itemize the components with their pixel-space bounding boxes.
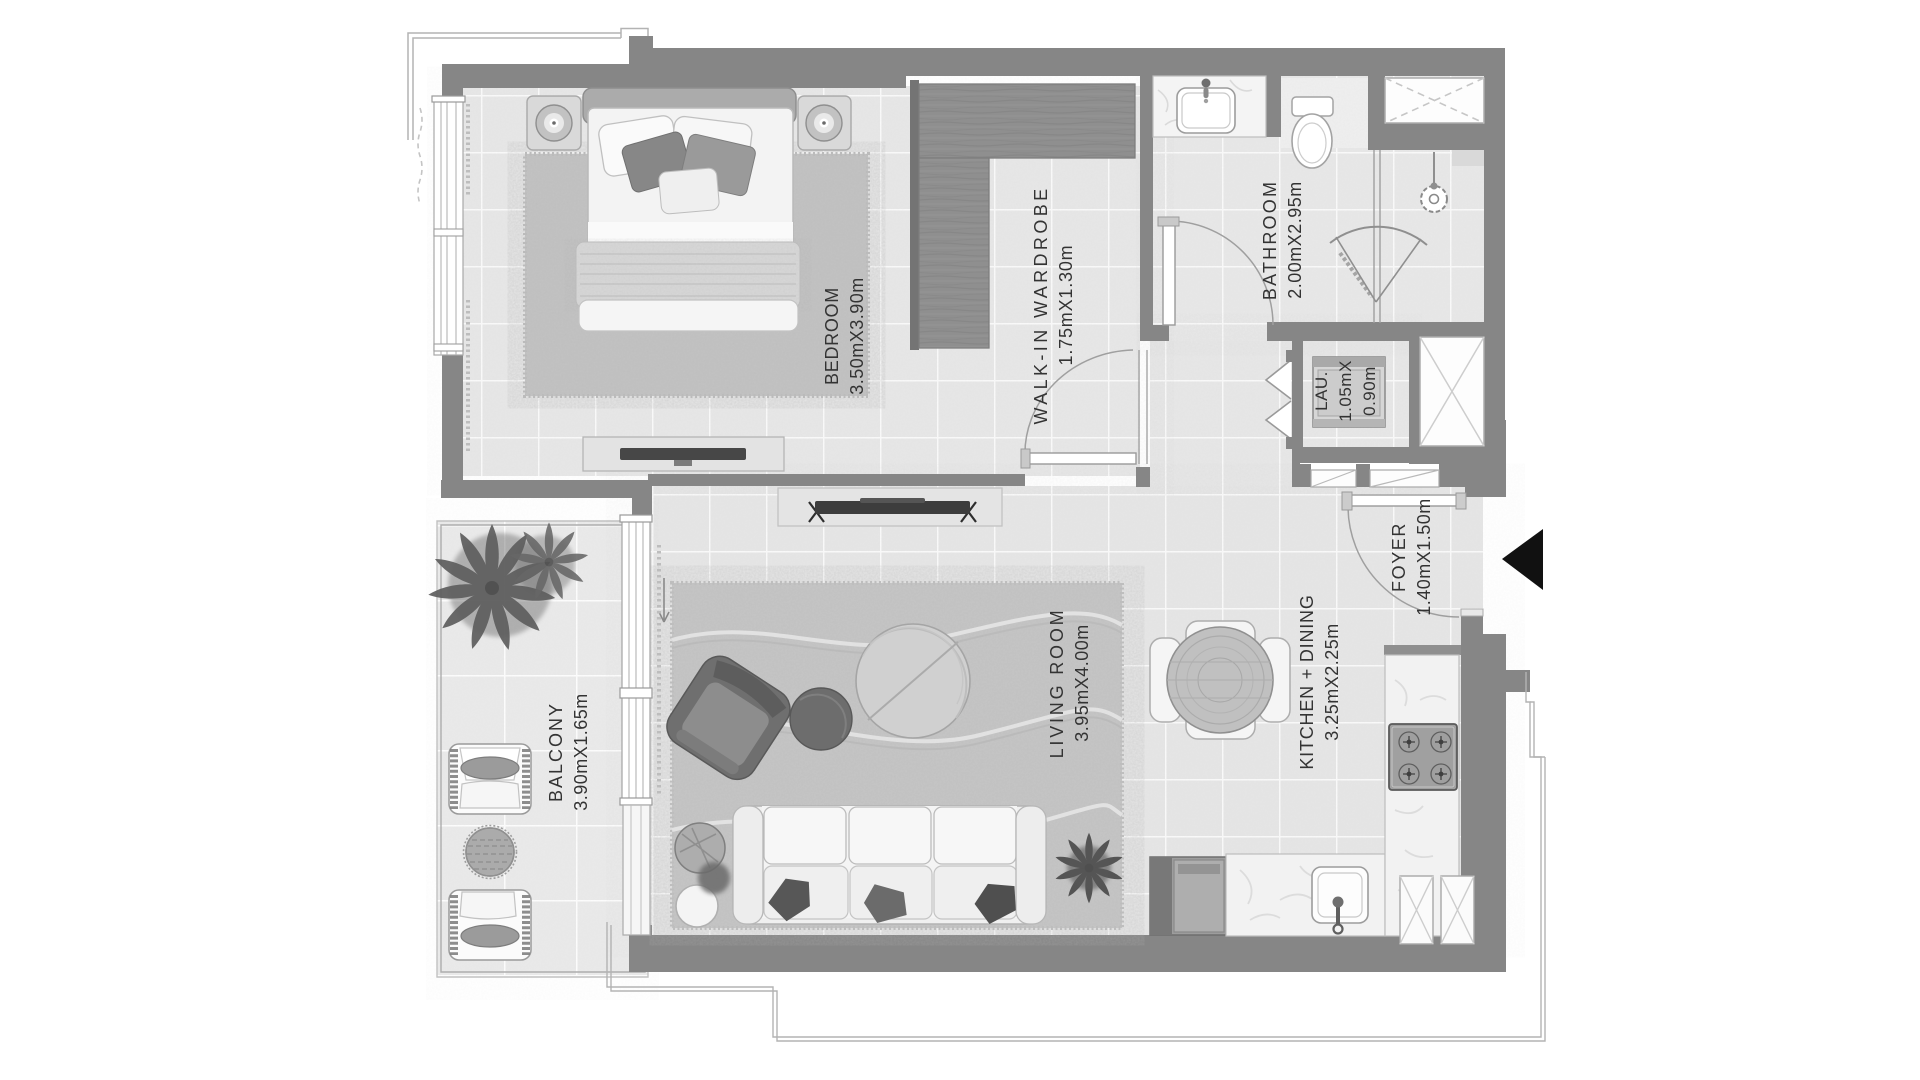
svg-text:1.05mX: 1.05mX — [1336, 360, 1355, 422]
svg-text:LIVING ROOM: LIVING ROOM — [1047, 608, 1067, 759]
svg-text:2.00mX2.95m: 2.00mX2.95m — [1285, 181, 1305, 299]
svg-text:3.90mX1.65m: 3.90mX1.65m — [571, 693, 591, 811]
svg-text:WALK-IN WARDROBE: WALK-IN WARDROBE — [1031, 185, 1051, 424]
svg-text:0.90m: 0.90m — [1360, 366, 1379, 416]
svg-text:1.75mX1.30m: 1.75mX1.30m — [1056, 245, 1076, 366]
svg-text:3.25mX2.25m: 3.25mX2.25m — [1322, 623, 1342, 741]
svg-text:BEDROOM: BEDROOM — [822, 287, 842, 385]
svg-text:BATHROOM: BATHROOM — [1260, 180, 1280, 300]
svg-text:1.40mX1.50m: 1.40mX1.50m — [1414, 498, 1434, 616]
svg-text:3.50mX3.90m: 3.50mX3.90m — [847, 277, 867, 395]
svg-text:3.95mX4.00m: 3.95mX4.00m — [1072, 624, 1092, 742]
svg-text:LAU.: LAU. — [1312, 371, 1331, 411]
svg-text:BALCONY: BALCONY — [546, 702, 566, 802]
svg-text:KITCHEN + DINING: KITCHEN + DINING — [1297, 594, 1317, 769]
svg-text:FOYER: FOYER — [1389, 522, 1409, 592]
